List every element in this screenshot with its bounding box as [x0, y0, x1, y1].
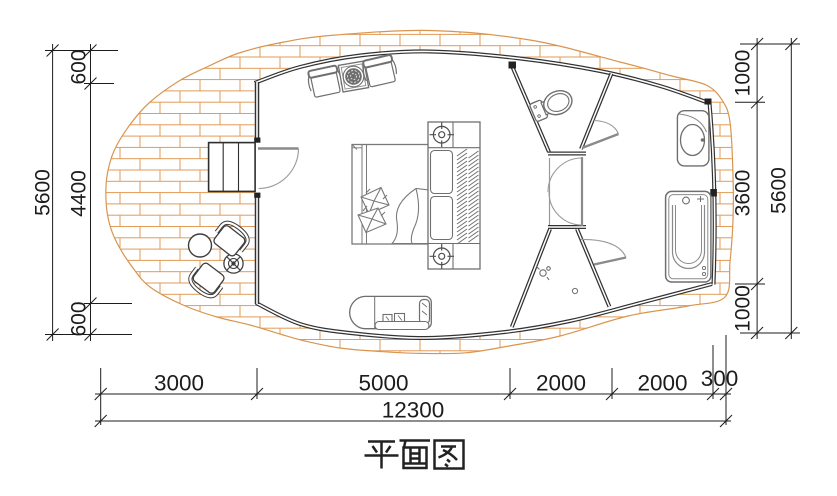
svg-text:600: 600	[68, 301, 91, 336]
svg-text:5600: 5600	[32, 169, 55, 216]
svg-text:5000: 5000	[358, 371, 408, 396]
svg-text:3600: 3600	[732, 170, 755, 217]
svg-text:600: 600	[68, 49, 91, 84]
svg-text:2000: 2000	[637, 371, 687, 396]
svg-text:1000: 1000	[732, 285, 755, 332]
svg-text:4400: 4400	[68, 170, 91, 217]
svg-text:5600: 5600	[768, 167, 791, 214]
svg-text:3000: 3000	[154, 371, 204, 396]
svg-text:1000: 1000	[732, 50, 755, 97]
svg-text:300: 300	[701, 366, 739, 391]
svg-text:2000: 2000	[536, 371, 586, 396]
svg-text:12300: 12300	[382, 398, 445, 423]
